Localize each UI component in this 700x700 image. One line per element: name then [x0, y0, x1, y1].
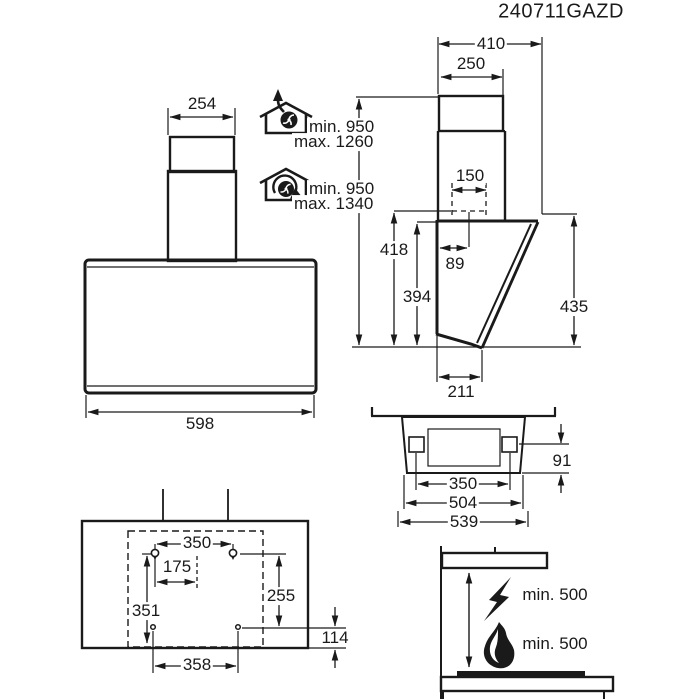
electric-hob-clearance-label: min. 500 [520, 586, 589, 604]
side-width-total-label: 410 [475, 35, 507, 53]
extraction-max-height-label: max. 1260 [292, 133, 375, 151]
template-upper-holes-label: 350 [181, 534, 213, 552]
template-lower-edge-offset-label: 114 [319, 629, 350, 647]
front-chimney-width-label: 254 [186, 95, 218, 113]
side-view [352, 37, 581, 382]
side-height-rear-label: 418 [378, 241, 410, 259]
template-lower-holes-label: 358 [181, 656, 213, 674]
line-art [0, 0, 700, 700]
template-center-offset-label: 175 [161, 558, 193, 576]
side-height-front-label: 435 [558, 298, 590, 316]
bottom-outer-width-label: 539 [448, 513, 480, 531]
recirculation-max-height-label: max. 1340 [292, 195, 375, 213]
gas-hob-clearance-label: min. 500 [520, 635, 589, 653]
side-depth-bottom-label: 211 [445, 383, 476, 401]
page-title: 240711GAZD [496, 2, 626, 23]
side-duct-offset-label: 89 [444, 255, 467, 273]
bottom-bracket-depth-label: 91 [551, 452, 574, 470]
template-height-left-label: 351 [130, 602, 162, 620]
bottom-bracket-spacing-label: 350 [447, 475, 479, 493]
house-fan-exhaust-icon [260, 89, 312, 133]
lightning-icon [484, 577, 511, 621]
template-height-right-label: 255 [265, 587, 297, 605]
bottom-inner-width-label: 504 [447, 494, 479, 512]
side-chimney-depth-label: 250 [455, 55, 487, 73]
flame-icon [484, 622, 514, 668]
side-duct-diameter-label: 150 [454, 167, 486, 185]
front-view [85, 108, 316, 418]
clearance-diagram [441, 546, 613, 699]
front-body-width-label: 598 [184, 415, 216, 433]
side-height-panel-label: 394 [401, 288, 433, 306]
mounting-template [82, 489, 346, 673]
technical-drawing-page: 240711GAZD 254 598 410 250 150 89 418 39… [0, 0, 700, 700]
